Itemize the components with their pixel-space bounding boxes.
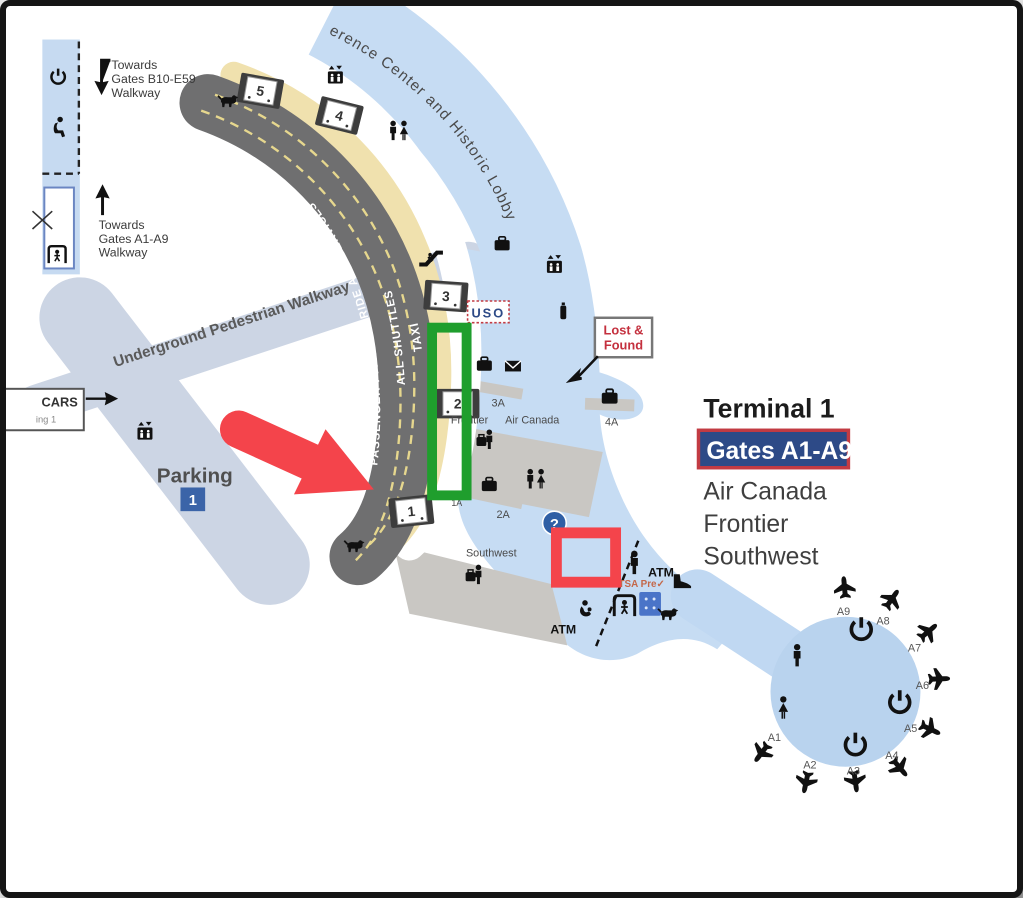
atm-upper-label: ATM: [648, 565, 674, 579]
airplane-icon-a9: [833, 575, 857, 599]
legend-airline-frontier: Frontier: [703, 511, 788, 538]
gate-a5-label: A5: [904, 723, 917, 735]
legend-airline-southwest: Southwest: [703, 543, 818, 570]
uso-label: USO: [471, 305, 505, 320]
gate-a9: A9: [833, 575, 857, 617]
towards-a-line3: Walkway: [99, 246, 149, 260]
door-3: 3: [423, 280, 468, 313]
gate-a1-label: A1: [768, 732, 781, 744]
airplane-icon-a5: [916, 715, 945, 744]
airplane-icon-a6: [928, 668, 951, 690]
airplane-icon-a8: [877, 584, 907, 615]
gate-a3: A3: [843, 766, 868, 794]
gate-a1: A1: [746, 732, 781, 768]
up-walkway-arrow-icon: [98, 188, 107, 216]
terminal-map-svg: PASSENGER PICKUP & RIDE APP SERVICES ALL…: [6, 6, 1017, 892]
towards-a-line1: Towards: [99, 218, 145, 232]
terminal-title: Terminal 1: [703, 393, 834, 423]
airplane-icon-a2: [793, 769, 819, 795]
counter-aircanada-label: Air Canada: [505, 414, 560, 426]
left-edge-strip: [32, 40, 79, 275]
airport-terminal-map-screenshot: PASSENGER PICKUP & RIDE APP SERVICES ALL…: [0, 0, 1023, 898]
gate-a3-label: A3: [847, 766, 860, 778]
gate-a8-label: A8: [876, 616, 889, 628]
gates-banner-label: Gates A1-A9: [706, 438, 852, 465]
towards-a-line2: Gates A1-A9: [99, 232, 169, 246]
gate-a6: A6: [916, 668, 951, 692]
gate-a9-label: A9: [837, 606, 850, 618]
gate-a7-label: A7: [908, 642, 921, 654]
uso-sign: USO: [468, 301, 509, 323]
gate-corridor: [697, 596, 794, 659]
gate-a6-label: A6: [916, 680, 929, 692]
atm-lower-label: ATM: [550, 623, 576, 637]
biometric-kiosk-icon: [639, 592, 661, 616]
towards-b-line2: Gates B10-E59: [111, 72, 195, 86]
mail-icon: [505, 361, 521, 372]
cars-sign-line2: ing 1: [36, 414, 56, 424]
gate-a4: A4: [884, 750, 915, 783]
lost-found-line2: Found: [604, 337, 643, 352]
gate-a2: A2: [793, 760, 819, 796]
door-3-number: 3: [442, 288, 451, 305]
terminal-legend: Terminal 1 Gates A1-A9 Air Canada Fronti…: [698, 393, 852, 570]
parking-number: 1: [189, 493, 197, 509]
down-walkway-arrow-icon: [97, 60, 110, 92]
lost-found-line1: Lost &: [604, 323, 644, 338]
belt-3a-label: 3A: [492, 398, 506, 410]
gate-a2-label: A2: [803, 760, 816, 772]
legend-airline-aircanada: Air Canada: [703, 478, 827, 505]
tsa-pre-label: TSA Pre✓: [619, 579, 665, 590]
towards-b-line1: Towards: [111, 58, 157, 72]
door-2-number: 2: [454, 396, 462, 412]
counter-southwest-label: Southwest: [466, 548, 517, 560]
gate-a4-label: A4: [885, 750, 898, 762]
parking-label: Parking: [157, 465, 233, 488]
belt-2a-label: 2A: [496, 509, 510, 521]
cars-sign-line1: CARS: [42, 395, 79, 410]
belt-4a-label: 4A: [605, 416, 619, 428]
towards-gates-a: Towards Gates A1-A9 Walkway: [98, 188, 169, 260]
gate-a7: A7: [908, 616, 944, 654]
towards-b-line3: Walkway: [111, 86, 161, 100]
gate-a8: A8: [876, 584, 907, 628]
